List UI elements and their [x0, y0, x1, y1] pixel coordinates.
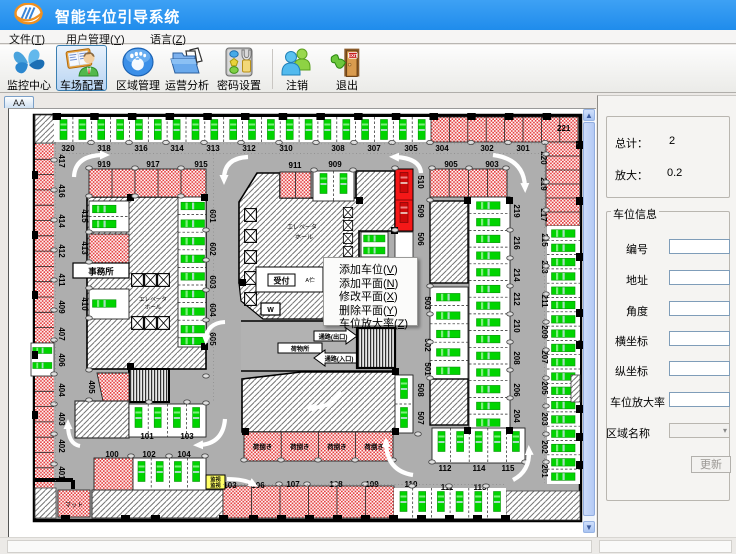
svg-text:410: 410 [80, 297, 89, 311]
svg-text:208: 208 [512, 351, 521, 365]
svg-text:104: 104 [177, 450, 191, 459]
svg-text:604: 604 [208, 303, 217, 317]
svg-text:314: 314 [170, 144, 184, 153]
svg-text:909: 909 [328, 160, 342, 169]
svg-text:206: 206 [512, 383, 521, 397]
svg-text:荷捌き: 荷捌き [326, 442, 347, 451]
svg-text:915: 915 [194, 160, 208, 169]
svg-text:911: 911 [289, 161, 302, 170]
svg-text:320: 320 [61, 144, 75, 153]
svg-text:308: 308 [331, 144, 345, 153]
svg-text:ホール: ホール [295, 234, 313, 241]
svg-text:ホール: ホール [145, 304, 162, 311]
svg-text:荷捌き: 荷捌き [252, 442, 273, 451]
svg-text:503: 503 [423, 296, 432, 310]
svg-text:通路(出口): 通路(出口) [319, 333, 348, 341]
svg-text:312: 312 [242, 144, 256, 153]
svg-text:221: 221 [557, 124, 571, 133]
svg-text:310: 310 [279, 144, 293, 153]
svg-text:318: 318 [97, 144, 111, 153]
svg-text:荷捌き: 荷捌き [289, 442, 310, 451]
svg-text:403: 403 [57, 412, 66, 426]
svg-text:417: 417 [57, 154, 66, 168]
svg-text:601: 601 [208, 209, 217, 223]
svg-text:100: 100 [105, 450, 119, 459]
svg-text:114: 114 [473, 464, 486, 473]
svg-text:202: 202 [540, 440, 549, 454]
svg-text:605: 605 [208, 332, 217, 346]
svg-text:エレベータ: エレベータ [139, 295, 167, 303]
svg-text:409: 409 [57, 300, 66, 314]
svg-text:404: 404 [57, 383, 66, 397]
svg-text:304: 304 [435, 144, 449, 153]
svg-text:W: W [267, 307, 274, 314]
svg-text:监视: 监视 [210, 475, 221, 483]
svg-text:416: 416 [57, 184, 66, 198]
svg-text:411: 411 [57, 274, 66, 287]
svg-text:通路(入口): 通路(入口) [325, 355, 354, 363]
svg-text:102: 102 [142, 450, 156, 459]
svg-text:507: 507 [416, 411, 425, 425]
svg-text:101: 101 [140, 432, 154, 441]
svg-text:919: 919 [97, 160, 111, 169]
svg-text:501: 501 [423, 362, 432, 376]
svg-text:305: 305 [404, 144, 418, 153]
svg-text:212: 212 [512, 292, 521, 306]
svg-text:A伫: A伫 [305, 276, 315, 284]
svg-text:EXIT: EXIT [348, 53, 358, 58]
svg-text:荷物所: 荷物所 [290, 345, 310, 353]
svg-text:415: 415 [80, 209, 89, 223]
svg-text:214: 214 [512, 268, 521, 282]
svg-text:508: 508 [416, 383, 425, 397]
svg-text:219: 219 [512, 204, 521, 218]
svg-text:204: 204 [512, 409, 521, 423]
svg-text:509: 509 [416, 204, 425, 218]
svg-text:407: 407 [57, 327, 66, 341]
svg-text:602: 602 [208, 242, 217, 256]
svg-text:115: 115 [502, 464, 515, 473]
svg-text:405: 405 [87, 380, 96, 394]
svg-text:510: 510 [416, 175, 425, 189]
svg-text:917: 917 [146, 160, 160, 169]
svg-text:603: 603 [208, 275, 217, 289]
svg-text:402: 402 [57, 439, 66, 453]
svg-text:112: 112 [439, 464, 452, 473]
svg-text:406: 406 [57, 353, 66, 367]
svg-text:荷捌き: 荷捌き [363, 442, 384, 451]
svg-text:412: 412 [57, 244, 66, 258]
svg-text:905: 905 [444, 160, 458, 169]
svg-text:413: 413 [80, 241, 89, 255]
svg-text:监视: 监视 [210, 481, 221, 489]
svg-text:事務所: 事務所 [88, 267, 114, 277]
svg-text:307: 307 [367, 144, 381, 153]
svg-text:316: 316 [134, 144, 148, 153]
svg-text:エレベータ: エレベータ [287, 223, 317, 231]
svg-text:302: 302 [480, 144, 494, 153]
svg-text:903: 903 [485, 160, 499, 169]
svg-text:マット: マット [65, 502, 83, 509]
svg-text:103: 103 [180, 432, 194, 441]
svg-text:203: 203 [540, 412, 549, 426]
svg-text:301: 301 [516, 144, 530, 153]
svg-text:受付: 受付 [274, 276, 290, 286]
svg-text:216: 216 [512, 236, 521, 250]
svg-text:210: 210 [512, 319, 521, 333]
svg-text:506: 506 [416, 232, 425, 246]
svg-text:414: 414 [57, 214, 66, 228]
